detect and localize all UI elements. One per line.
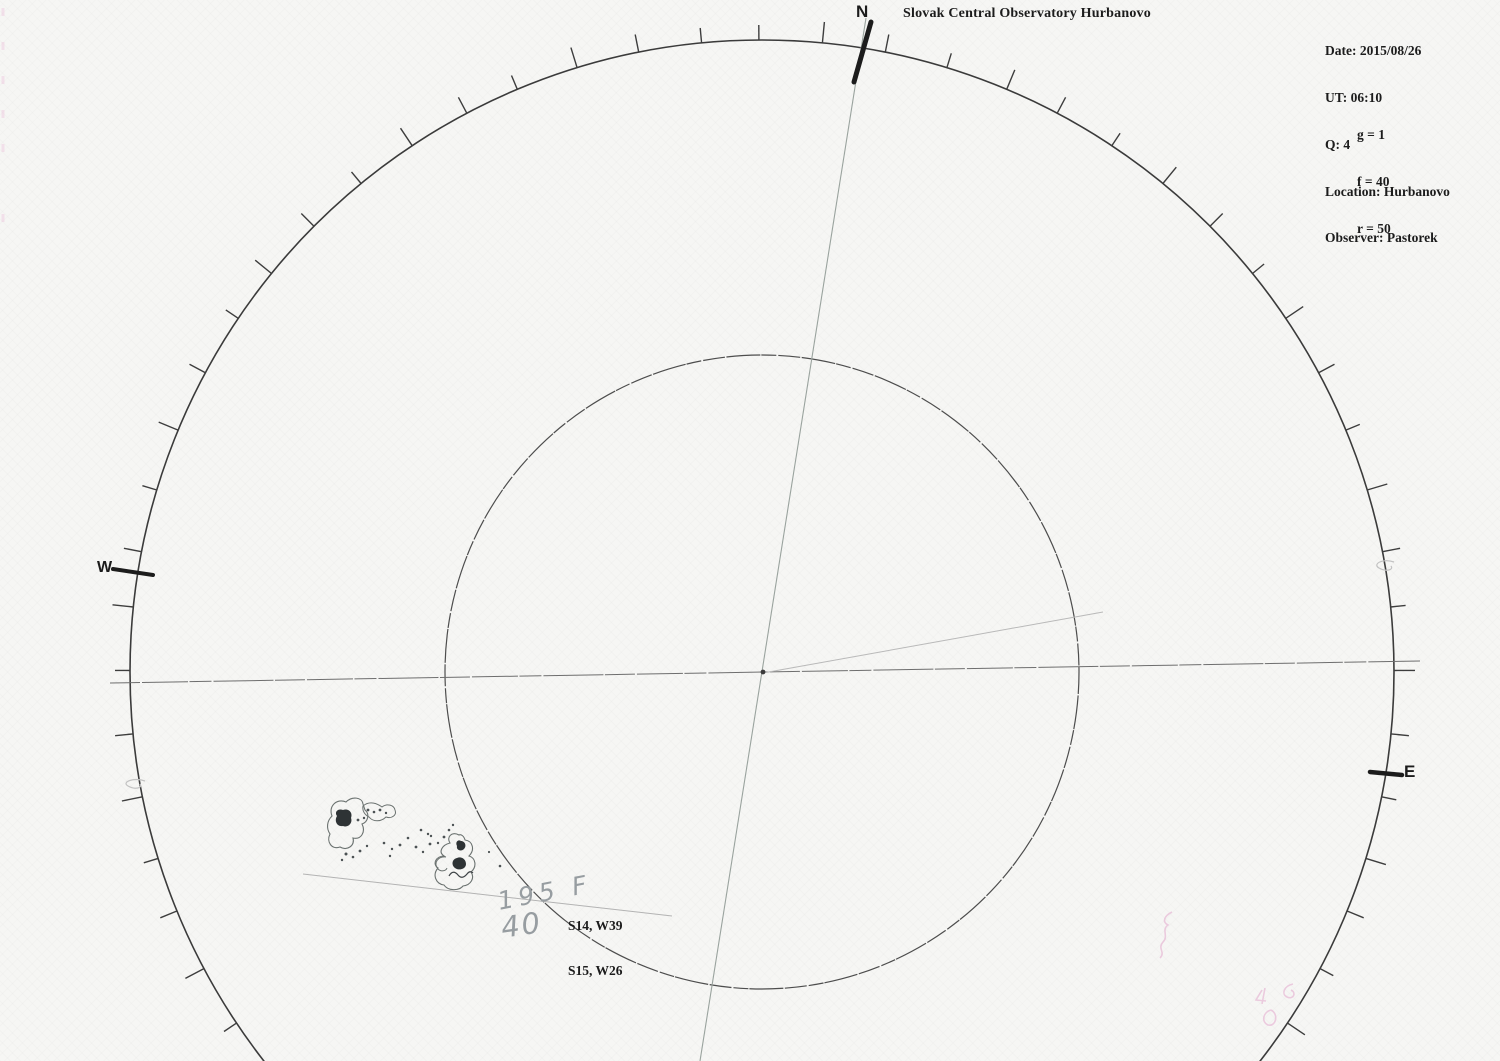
faint-pink-marks [1160, 912, 1294, 1025]
limb-tick [113, 605, 134, 607]
stat-spots: f = 40 [1357, 174, 1391, 190]
limb-tick [255, 260, 271, 273]
limb-tick [159, 422, 178, 430]
sunspot-pores [341, 824, 502, 868]
limb-tick [571, 48, 577, 68]
limb-tick [458, 97, 466, 113]
faint-equator-line [763, 612, 1103, 673]
limb-tick [512, 76, 518, 90]
solar-limb-circle [130, 40, 1394, 1061]
limb-tick [401, 128, 413, 146]
meta-date: Date: 2015/08/26 [1325, 43, 1450, 59]
scanned-solar-drawing-sheet: Slovak Central Observatory Hurbanovo N W… [0, 0, 1500, 1061]
limb-tick [301, 214, 314, 227]
limb-tick [226, 310, 238, 318]
sunspot-group-drawing [328, 798, 502, 890]
handwritten-spot-count: 40 [499, 905, 544, 944]
sunspot-scribble-right [449, 872, 473, 878]
east-ink-stroke [1370, 772, 1402, 775]
limb-tick [1383, 548, 1401, 551]
limb-tick [1382, 797, 1397, 800]
compass-label-west: W [97, 559, 112, 577]
observatory-title: Slovak Central Observatory Hurbanovo [903, 6, 1151, 22]
limb-tick [1366, 858, 1386, 864]
limb-tick [142, 486, 156, 490]
spot-coordinate-line1: S14, W39 [568, 918, 623, 933]
limb-tick [700, 28, 701, 43]
limb-tick [1320, 969, 1333, 976]
limb-tick [124, 548, 142, 551]
limb-tick [352, 172, 362, 184]
disk-center-dot [761, 670, 766, 675]
compass-label-north: N [856, 2, 868, 22]
limb-tick [1112, 133, 1120, 146]
limb-tick [1346, 424, 1360, 430]
spot-coordinate-line2: S15, W26 [568, 963, 623, 978]
limb-tick [1057, 97, 1065, 113]
spot-coordinate-labels: S14, W39 S15, W26 [568, 888, 623, 1008]
limb-tick [144, 858, 158, 862]
limb-tick [1163, 167, 1176, 183]
compass-label-east: E [1404, 762, 1415, 782]
limb-tick-marks [113, 22, 1416, 1061]
limb-tick [160, 911, 177, 918]
limb-tick [1210, 214, 1223, 227]
sunspot-umbra-left [336, 809, 352, 826]
limb-tick [1288, 1023, 1305, 1035]
limb-tick [1347, 911, 1364, 918]
limb-tick [1391, 734, 1409, 736]
stat-relative-number: r = 50 [1357, 221, 1391, 237]
west-ink-stroke [113, 569, 153, 575]
limb-tick [115, 734, 133, 736]
limb-tick [635, 35, 639, 53]
limb-tick [122, 797, 142, 801]
limb-tick [885, 35, 889, 53]
limb-tick [1319, 364, 1335, 373]
limb-tick [1253, 264, 1265, 274]
limb-tick [1391, 605, 1406, 607]
sunspot-statistics-block: g = 1 f = 40 r = 50 [1357, 96, 1391, 268]
solar-disk-drawing [0, 0, 1500, 1061]
north-south-line [700, 18, 866, 1061]
cardinal-ink-strokes [113, 22, 1402, 775]
sunspot-umbra-right-mid [453, 857, 466, 869]
sunspot-penumbra-right-hook [436, 857, 447, 871]
faint-pencil-scribbles [126, 561, 1394, 788]
limb-tick [1367, 484, 1387, 490]
limb-tick [224, 1023, 237, 1031]
limb-tick [185, 969, 204, 979]
limb-tick [190, 364, 206, 373]
sunspot-umbra-right-top [456, 840, 465, 850]
limb-tick [947, 53, 951, 67]
stat-groups: g = 1 [1357, 127, 1391, 143]
limb-tick [1007, 70, 1015, 89]
limb-tick [822, 22, 824, 43]
north-ink-stroke [854, 22, 871, 82]
limb-tick [1286, 307, 1303, 319]
